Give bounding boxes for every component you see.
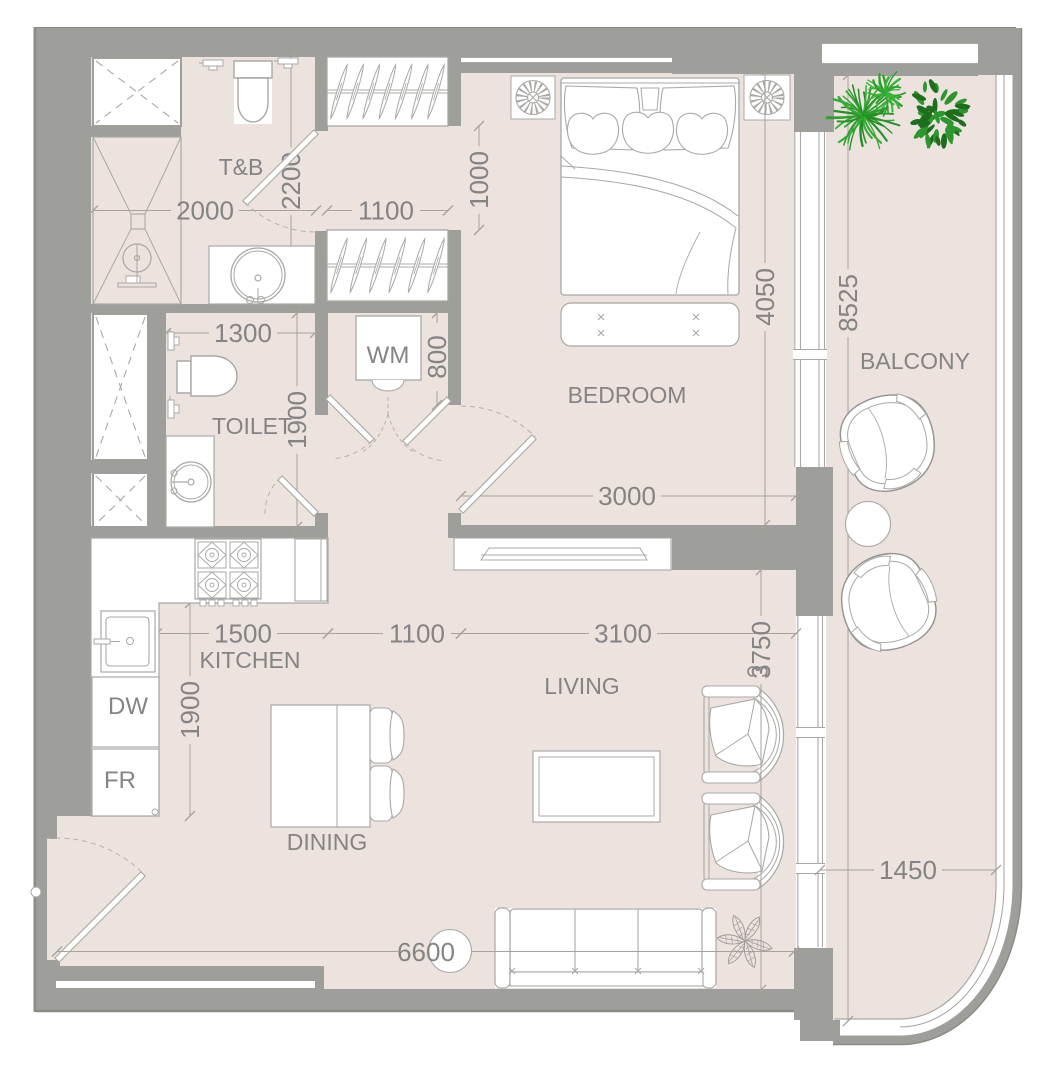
svg-text:1500: 1500 — [214, 619, 272, 649]
svg-text:BEDROOM: BEDROOM — [568, 382, 687, 408]
svg-text:KITCHEN: KITCHEN — [200, 647, 301, 673]
svg-text:2000: 2000 — [176, 196, 234, 226]
svg-text:1300: 1300 — [214, 318, 272, 348]
svg-text:LIVING: LIVING — [544, 673, 619, 699]
svg-text:BALCONY: BALCONY — [860, 348, 970, 374]
svg-text:1100: 1100 — [389, 619, 445, 649]
svg-text:6600: 6600 — [397, 937, 455, 967]
svg-text:DW: DW — [108, 693, 148, 720]
svg-text:3750: 3750 — [746, 621, 776, 679]
svg-text:TOILET: TOILET — [212, 413, 292, 439]
svg-text:1100: 1100 — [358, 196, 414, 226]
svg-text:8525: 8525 — [833, 274, 863, 332]
svg-text:3000: 3000 — [598, 481, 656, 511]
svg-text:3100: 3100 — [594, 619, 652, 649]
svg-text:4050: 4050 — [750, 268, 780, 326]
svg-text:T&B: T&B — [219, 154, 264, 180]
svg-text:1000: 1000 — [464, 151, 494, 209]
svg-text:1450: 1450 — [879, 855, 937, 885]
svg-text:FR: FR — [104, 767, 136, 794]
svg-text:800: 800 — [422, 335, 452, 378]
svg-text:WM: WM — [367, 342, 410, 369]
svg-text:1900: 1900 — [175, 681, 205, 739]
svg-text:DINING: DINING — [287, 829, 368, 855]
